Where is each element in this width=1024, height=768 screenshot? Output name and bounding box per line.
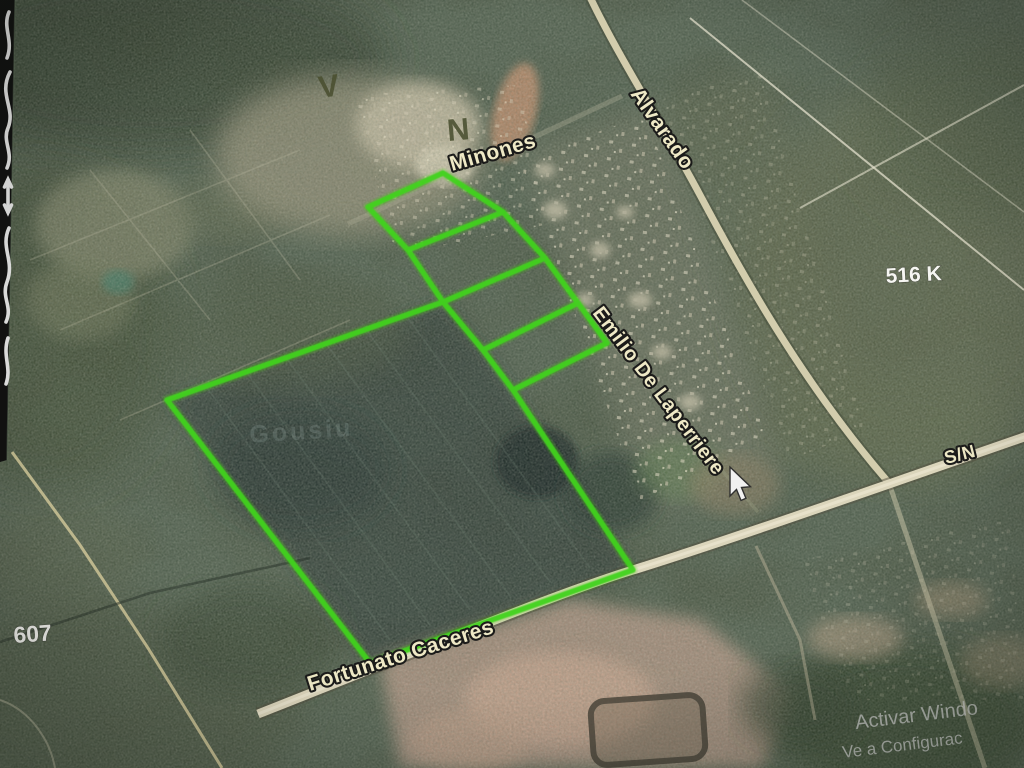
satellite-map-photo[interactable]: V N Gousiu Minones Alvarado Emilio De La… (0, 0, 1024, 768)
map-canvas: V N Gousiu Minones Alvarado Emilio De La… (0, 0, 1024, 768)
vignette (0, 0, 1024, 768)
